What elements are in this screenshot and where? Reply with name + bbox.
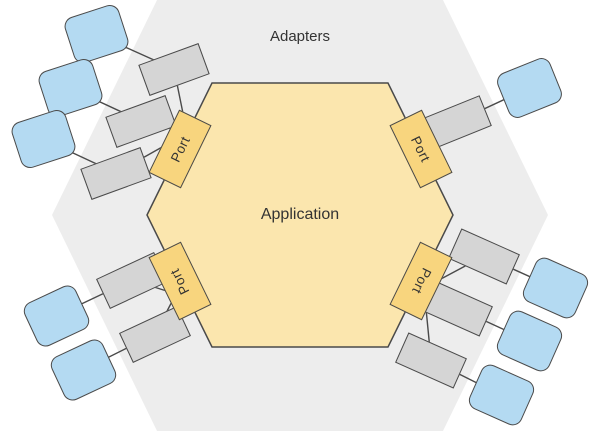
application-label: Application — [230, 206, 370, 224]
port-label: Port — [408, 134, 433, 165]
adapters-zone-label: Adapters — [230, 28, 370, 45]
port-label: Port — [167, 266, 192, 297]
port-label: Port — [408, 266, 433, 297]
hexagonal-architecture-diagram: Adapters Application Port Port Port Port — [0, 0, 600, 431]
port-label: Port — [167, 134, 192, 165]
